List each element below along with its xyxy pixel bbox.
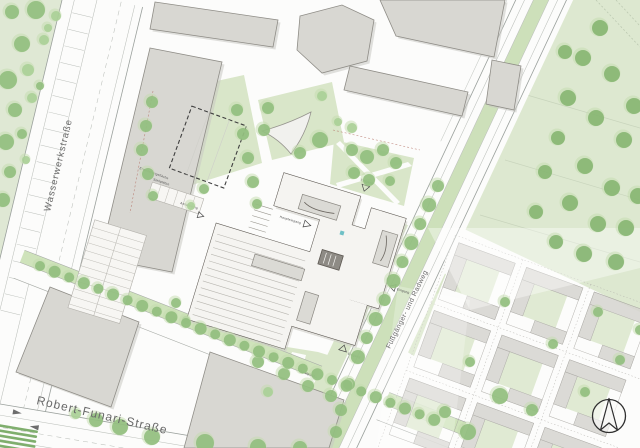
- building-north-east: [380, 0, 505, 57]
- north-arrow-icon: [593, 399, 626, 433]
- arrow-delivery-icon: [197, 212, 204, 219]
- main-entrance-label: Haupteingang: [279, 215, 301, 225]
- arrow-main-entrance-icon: [303, 220, 312, 229]
- building-north-lower: [344, 66, 468, 116]
- site-plan: Stellplätze Erweiterungsfläche: [0, 0, 640, 448]
